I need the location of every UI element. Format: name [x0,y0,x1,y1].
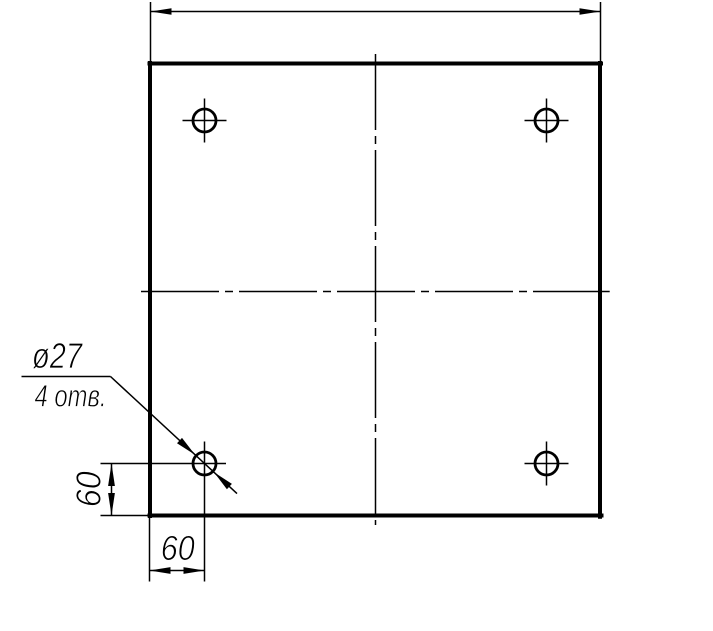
svg-text:4 отв.: 4 отв. [35,379,107,414]
svg-text:60: 60 [70,471,109,507]
svg-text:60: 60 [161,529,195,568]
svg-text:ø27: ø27 [32,335,84,376]
